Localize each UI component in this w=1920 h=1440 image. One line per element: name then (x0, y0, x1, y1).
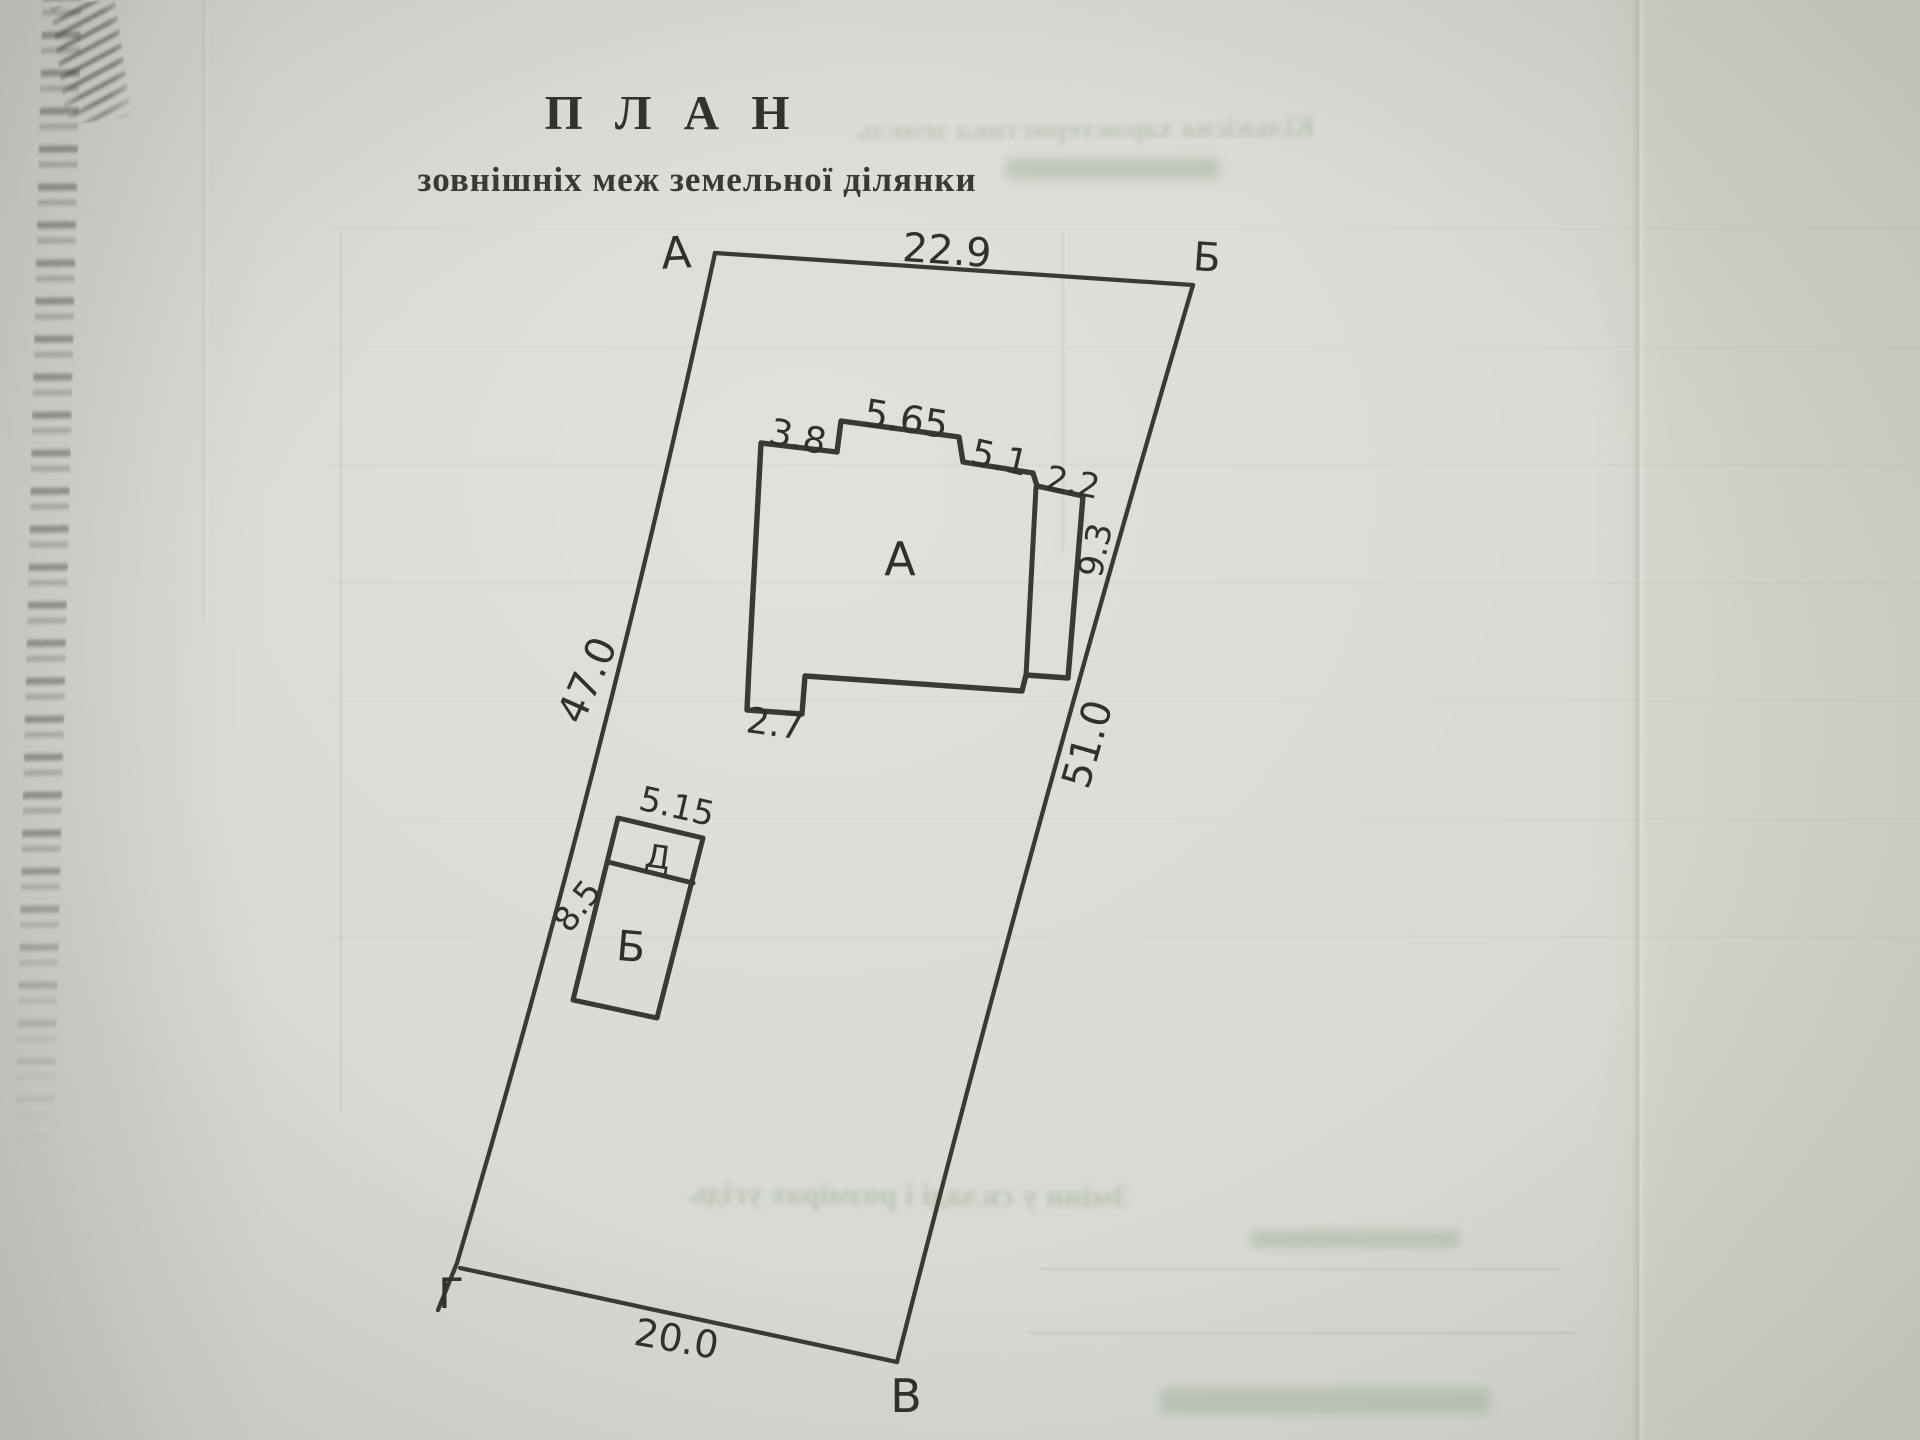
plan-drawing: А Б В Г 22.9 47.0 51.0 20.0 А 3.8 5.65 5… (0, 0, 1920, 1440)
building-a-wing-divider (1026, 487, 1036, 676)
boundary-left (438, 253, 715, 1310)
dim-3-8: 3.8 (765, 411, 830, 463)
dim-2-7: 2.7 (744, 700, 806, 749)
corner-label-bottom-left: Г (438, 1269, 464, 1318)
dim-5-1: 5.1 (967, 432, 1032, 485)
side-length-right: 51.0 (1054, 695, 1123, 793)
corner-label-top-left: А (660, 227, 693, 280)
building-d-label: Д (643, 836, 673, 877)
corner-label-bottom-right: В (890, 1369, 922, 1423)
side-length-top: 22.9 (901, 225, 993, 277)
building-b-label: Б (615, 921, 648, 972)
dim-5-65: 5.65 (861, 391, 951, 448)
building-a-label: А (884, 532, 916, 586)
corner-label-top-right: Б (1192, 234, 1223, 282)
side-length-bottom: 20.0 (631, 1310, 722, 1368)
dim-2-2: 2.2 (1042, 458, 1103, 508)
scanned-paper-photo: Кількісна характеристика земель Зміни у … (0, 0, 1920, 1440)
